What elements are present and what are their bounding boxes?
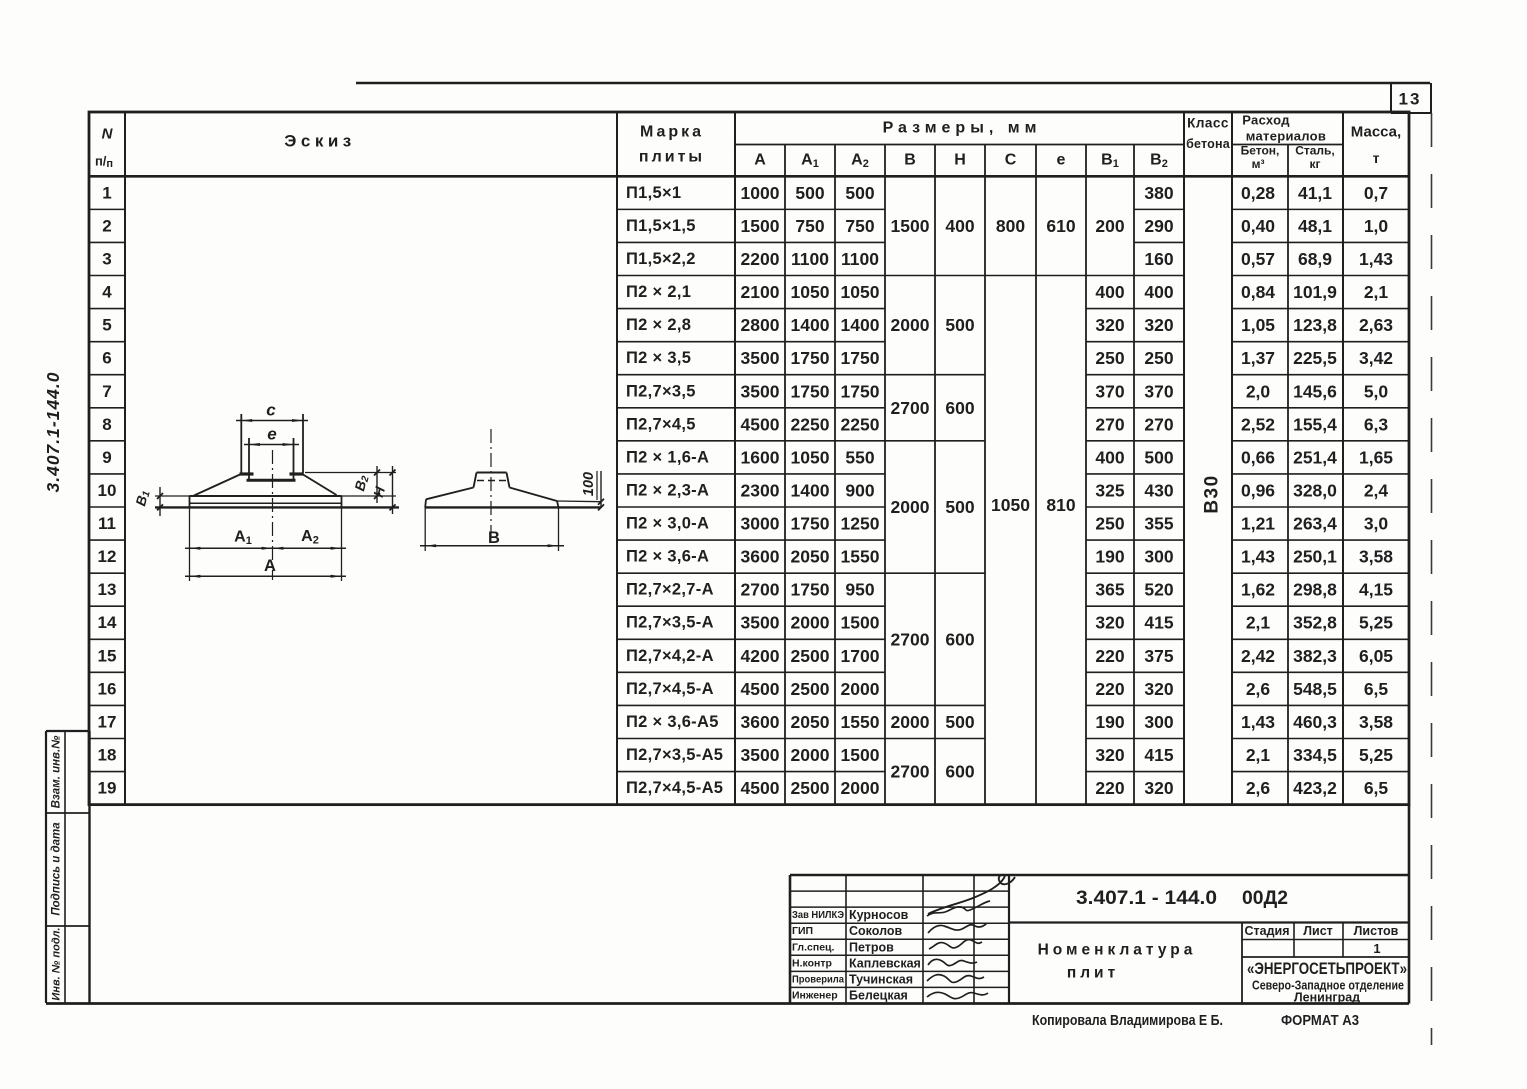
svg-text:415: 415 (1144, 745, 1173, 765)
svg-text:460,3: 460,3 (1293, 712, 1337, 732)
svg-text:Эскиз: Эскиз (284, 132, 355, 151)
svg-text:2700: 2700 (741, 580, 780, 600)
svg-text:520: 520 (1144, 580, 1173, 600)
svg-text:плит: плит (1067, 965, 1119, 982)
svg-text:0,96: 0,96 (1241, 480, 1275, 500)
svg-text:600: 600 (945, 398, 974, 418)
svg-text:П2,7×4,5: П2,7×4,5 (626, 415, 696, 433)
svg-text:298,8: 298,8 (1293, 580, 1337, 600)
svg-text:250: 250 (1095, 348, 1124, 368)
svg-text:0,66: 0,66 (1241, 447, 1275, 467)
svg-text:с: с (266, 401, 276, 420)
svg-text:П2,7×4,5-А5: П2,7×4,5-А5 (626, 779, 723, 797)
svg-text:400: 400 (945, 216, 974, 236)
svg-text:220: 220 (1095, 646, 1124, 666)
svg-text:500: 500 (945, 315, 974, 335)
svg-text:320: 320 (1144, 315, 1173, 335)
svg-text:1400: 1400 (791, 315, 830, 335)
svg-text:3,0: 3,0 (1364, 514, 1389, 534)
svg-text:N: N (102, 126, 114, 143)
svg-text:Бетон,: Бетон, (1241, 144, 1280, 158)
svg-text:4500: 4500 (741, 679, 780, 699)
svg-text:П2 × 3,6-А: П2 × 3,6-А (626, 548, 709, 566)
svg-text:3000: 3000 (741, 514, 780, 534)
svg-text:290: 290 (1144, 216, 1173, 236)
svg-text:400: 400 (1095, 447, 1124, 467)
svg-text:2,6: 2,6 (1246, 679, 1271, 699)
svg-text:2700: 2700 (891, 629, 930, 649)
svg-text:5,25: 5,25 (1359, 745, 1393, 765)
svg-text:1750: 1750 (791, 381, 830, 401)
svg-text:6: 6 (102, 349, 111, 368)
svg-text:2: 2 (102, 216, 111, 235)
svg-text:1: 1 (1373, 941, 1380, 956)
svg-text:5,0: 5,0 (1364, 381, 1389, 401)
svg-text:Н: Н (954, 152, 966, 169)
svg-text:1550: 1550 (841, 547, 880, 567)
svg-text:1: 1 (102, 183, 111, 202)
svg-text:320: 320 (1095, 315, 1124, 335)
svg-text:Инв. № подл.: Инв. № подл. (51, 927, 63, 1000)
svg-text:4200: 4200 (741, 646, 780, 666)
svg-text:382,3: 382,3 (1293, 646, 1337, 666)
svg-text:610: 610 (1046, 216, 1075, 236)
svg-text:2,4: 2,4 (1364, 480, 1389, 500)
svg-text:Подпись и дата: Подпись и дата (51, 822, 63, 916)
svg-text:Н.контр: Н.контр (792, 957, 832, 969)
svg-text:320: 320 (1144, 679, 1173, 699)
svg-text:Размеры, мм: Размеры, мм (883, 120, 1042, 137)
svg-text:370: 370 (1144, 381, 1173, 401)
svg-text:220: 220 (1095, 679, 1124, 699)
svg-text:Класс: Класс (1187, 116, 1229, 131)
svg-text:250: 250 (1144, 348, 1173, 368)
svg-text:3500: 3500 (741, 348, 780, 368)
svg-text:155,4: 155,4 (1293, 414, 1337, 434)
svg-text:3500: 3500 (741, 381, 780, 401)
svg-text:1750: 1750 (841, 348, 880, 368)
svg-text:А: А (264, 557, 276, 575)
svg-text:5,25: 5,25 (1359, 613, 1393, 633)
svg-text:Инженер: Инженер (792, 989, 838, 1001)
svg-text:Белецкая: Белецкая (849, 988, 908, 1002)
svg-text:3,42: 3,42 (1359, 348, 1393, 368)
svg-text:Соколов: Соколов (849, 924, 902, 938)
svg-text:14: 14 (98, 613, 117, 632)
svg-text:Ленинград: Ленинград (1294, 991, 1360, 1005)
svg-text:2250: 2250 (791, 414, 830, 434)
svg-text:423,2: 423,2 (1293, 778, 1337, 798)
svg-text:1100: 1100 (791, 249, 829, 269)
svg-text:0,84: 0,84 (1241, 282, 1275, 302)
svg-text:328,0: 328,0 (1293, 480, 1337, 500)
svg-text:190: 190 (1095, 712, 1124, 732)
svg-text:2000: 2000 (841, 778, 880, 798)
svg-text:1050: 1050 (841, 282, 880, 302)
svg-text:Расход: Расход (1242, 113, 1290, 128)
svg-text:П1,5×2,2: П1,5×2,2 (626, 250, 696, 268)
svg-text:1750: 1750 (791, 514, 830, 534)
svg-text:Копировала Владимирова Е Б.: Копировала Владимирова Е Б. (1032, 1013, 1223, 1029)
svg-text:кг: кг (1309, 157, 1320, 171)
svg-text:1250: 1250 (841, 514, 880, 534)
svg-text:101,9: 101,9 (1293, 282, 1337, 302)
svg-text:2000: 2000 (791, 613, 830, 633)
svg-text:9: 9 (102, 448, 111, 467)
svg-text:2250: 2250 (841, 414, 880, 434)
svg-text:Курносов: Курносов (849, 908, 909, 922)
svg-text:2,63: 2,63 (1359, 315, 1393, 335)
svg-text:2,52: 2,52 (1241, 414, 1275, 434)
svg-text:1050: 1050 (791, 282, 830, 302)
svg-text:334,5: 334,5 (1293, 745, 1337, 765)
svg-text:1100: 1100 (841, 249, 879, 269)
svg-text:415: 415 (1144, 613, 1173, 633)
svg-text:Зав НИЛКЭ: Зав НИЛКЭ (792, 909, 844, 921)
svg-text:3600: 3600 (741, 547, 780, 567)
svg-text:е: е (1057, 152, 1066, 169)
svg-text:263,4: 263,4 (1293, 514, 1337, 534)
svg-text:2,0: 2,0 (1246, 381, 1271, 401)
svg-text:810: 810 (1046, 495, 1075, 515)
svg-text:8: 8 (102, 415, 111, 434)
svg-text:е: е (267, 425, 276, 444)
svg-text:19: 19 (98, 779, 117, 798)
svg-text:5: 5 (102, 316, 111, 335)
svg-text:1750: 1750 (841, 381, 880, 401)
svg-text:П2 × 3,6-А5: П2 × 3,6-А5 (626, 713, 719, 731)
svg-text:бетона: бетона (1186, 137, 1231, 151)
svg-text:160: 160 (1144, 249, 1173, 269)
svg-text:1000: 1000 (741, 183, 780, 203)
svg-text:4: 4 (102, 283, 112, 302)
svg-text:Петров: Петров (849, 940, 894, 954)
svg-text:П2 × 1,6-А: П2 × 1,6-А (626, 448, 709, 466)
svg-text:2200: 2200 (741, 249, 780, 269)
svg-text:2000: 2000 (841, 679, 880, 699)
svg-text:7: 7 (102, 382, 111, 401)
svg-text:190: 190 (1095, 547, 1124, 567)
svg-text:0,40: 0,40 (1241, 216, 1275, 236)
svg-text:3,58: 3,58 (1359, 547, 1393, 567)
svg-text:2500: 2500 (791, 679, 830, 699)
svg-text:250,1: 250,1 (1293, 547, 1337, 567)
svg-text:Гл.спец.: Гл.спец. (792, 941, 834, 953)
svg-text:П2 × 3,0-А: П2 × 3,0-А (626, 515, 709, 533)
svg-text:2,6: 2,6 (1246, 778, 1271, 798)
svg-text:В: В (488, 529, 500, 547)
svg-text:68,9: 68,9 (1298, 249, 1332, 269)
svg-text:355: 355 (1144, 514, 1173, 534)
svg-text:145,6: 145,6 (1293, 381, 1337, 401)
svg-text:3.407.1 - 144.0: 3.407.1 - 144.0 (1076, 887, 1217, 909)
svg-text:Лист: Лист (1303, 924, 1333, 938)
svg-text:250: 250 (1095, 514, 1124, 534)
svg-text:2800: 2800 (741, 315, 780, 335)
svg-text:2000: 2000 (891, 315, 930, 335)
svg-text:430: 430 (1144, 480, 1173, 500)
svg-text:500: 500 (795, 183, 824, 203)
svg-text:1750: 1750 (791, 580, 830, 600)
svg-text:1,43: 1,43 (1241, 712, 1275, 732)
svg-text:0,57: 0,57 (1241, 249, 1275, 269)
svg-text:П2,7×2,7-А: П2,7×2,7-А (626, 581, 714, 599)
svg-text:Масса,: Масса, (1351, 124, 1401, 141)
svg-text:П2 × 2,3-А: П2 × 2,3-А (626, 481, 709, 499)
svg-text:1050: 1050 (991, 495, 1030, 515)
svg-text:4,15: 4,15 (1359, 580, 1393, 600)
svg-text:3.407.1-144.0: 3.407.1-144.0 (43, 371, 63, 492)
svg-text:2700: 2700 (891, 398, 930, 418)
svg-text:400: 400 (1095, 282, 1124, 302)
svg-text:3500: 3500 (741, 613, 780, 633)
svg-text:1,43: 1,43 (1359, 249, 1393, 269)
svg-text:251,4: 251,4 (1293, 447, 1337, 467)
svg-text:2,42: 2,42 (1241, 646, 1275, 666)
svg-text:«ЭНЕРГОСЕТЬПРОЕКТ»: «ЭНЕРГОСЕТЬПРОЕКТ» (1247, 960, 1407, 978)
svg-text:800: 800 (996, 216, 1025, 236)
svg-text:1600: 1600 (741, 447, 780, 467)
svg-text:10: 10 (98, 481, 117, 500)
svg-text:1400: 1400 (841, 315, 880, 335)
svg-text:352,8: 352,8 (1293, 613, 1337, 633)
svg-text:1,62: 1,62 (1241, 580, 1275, 600)
svg-text:00Д2: 00Д2 (1242, 887, 1288, 909)
svg-text:270: 270 (1144, 414, 1173, 434)
svg-text:200: 200 (1095, 216, 1124, 236)
svg-text:1500: 1500 (841, 613, 880, 633)
svg-text:П2,7×4,5-А: П2,7×4,5-А (626, 680, 714, 698)
svg-text:18: 18 (98, 746, 117, 765)
svg-text:2000: 2000 (891, 497, 930, 517)
svg-text:А: А (754, 152, 766, 169)
svg-text:320: 320 (1144, 778, 1173, 798)
svg-text:Номенклатура: Номенклатура (1038, 942, 1197, 959)
svg-text:325: 325 (1095, 480, 1124, 500)
svg-text:500: 500 (1144, 447, 1173, 467)
svg-text:365: 365 (1095, 580, 1124, 600)
svg-text:750: 750 (795, 216, 824, 236)
svg-text:300: 300 (1144, 547, 1173, 567)
svg-text:2050: 2050 (791, 712, 830, 732)
svg-text:1,21: 1,21 (1241, 514, 1275, 534)
svg-text:ГИП: ГИП (792, 925, 813, 937)
svg-text:2500: 2500 (791, 778, 830, 798)
svg-text:2,1: 2,1 (1246, 745, 1271, 765)
svg-text:548,5: 548,5 (1293, 679, 1337, 699)
svg-text:Тучинская: Тучинская (849, 972, 913, 986)
svg-text:2700: 2700 (891, 762, 930, 782)
svg-text:1500: 1500 (891, 216, 930, 236)
svg-text:П1,5×1: П1,5×1 (626, 184, 681, 202)
svg-text:2,1: 2,1 (1364, 282, 1389, 302)
svg-text:П2,7×3,5-А: П2,7×3,5-А (626, 614, 714, 632)
svg-text:П2,7×3,5-А5: П2,7×3,5-А5 (626, 746, 723, 764)
svg-text:1500: 1500 (841, 745, 880, 765)
svg-text:материалов: материалов (1246, 129, 1326, 144)
svg-text:600: 600 (945, 762, 974, 782)
svg-text:500: 500 (945, 497, 974, 517)
svg-text:6,05: 6,05 (1359, 646, 1393, 666)
svg-text:2500: 2500 (791, 646, 830, 666)
svg-text:4500: 4500 (741, 414, 780, 434)
svg-text:0,28: 0,28 (1241, 183, 1275, 203)
svg-text:370: 370 (1095, 381, 1124, 401)
svg-text:500: 500 (845, 183, 874, 203)
svg-text:1,05: 1,05 (1241, 315, 1275, 335)
svg-text:320: 320 (1095, 613, 1124, 633)
svg-text:6,3: 6,3 (1364, 414, 1389, 434)
svg-text:375: 375 (1144, 646, 1173, 666)
svg-text:плиты: плиты (639, 149, 705, 166)
svg-text:П2 × 2,1: П2 × 2,1 (626, 283, 691, 301)
svg-text:500: 500 (945, 712, 974, 732)
svg-text:1050: 1050 (791, 447, 830, 467)
svg-text:В: В (904, 152, 916, 169)
svg-text:41,1: 41,1 (1298, 183, 1332, 203)
svg-text:13: 13 (1399, 90, 1422, 109)
svg-text:225,5: 225,5 (1293, 348, 1337, 368)
svg-text:400: 400 (1144, 282, 1173, 302)
svg-text:1,37: 1,37 (1241, 348, 1275, 368)
svg-text:950: 950 (845, 580, 874, 600)
svg-text:11: 11 (98, 514, 116, 533)
svg-text:220: 220 (1095, 778, 1124, 798)
svg-text:1,43: 1,43 (1241, 547, 1275, 567)
svg-text:Марка: Марка (640, 124, 704, 141)
svg-text:Листов: Листов (1354, 924, 1399, 938)
svg-text:13: 13 (98, 580, 117, 599)
svg-text:0,7: 0,7 (1364, 183, 1388, 203)
svg-text:100: 100 (581, 472, 597, 496)
svg-text:м³: м³ (1252, 157, 1265, 171)
svg-text:Взам. инв.№: Взам. инв.№ (51, 736, 63, 809)
svg-text:320: 320 (1095, 745, 1124, 765)
svg-text:Каплевская: Каплевская (849, 956, 921, 970)
svg-text:2000: 2000 (891, 712, 930, 732)
svg-text:П1,5×1,5: П1,5×1,5 (626, 217, 696, 235)
svg-text:2000: 2000 (791, 745, 830, 765)
svg-text:2050: 2050 (791, 547, 830, 567)
svg-text:1750: 1750 (791, 348, 830, 368)
svg-text:48,1: 48,1 (1298, 216, 1332, 236)
svg-text:6,5: 6,5 (1364, 679, 1389, 699)
svg-text:1700: 1700 (841, 646, 880, 666)
svg-text:С: С (1005, 152, 1017, 169)
svg-text:123,8: 123,8 (1293, 315, 1337, 335)
svg-text:Стадия: Стадия (1244, 924, 1289, 938)
svg-text:2,1: 2,1 (1246, 613, 1271, 633)
svg-text:550: 550 (845, 447, 874, 467)
svg-text:750: 750 (845, 216, 874, 236)
svg-text:П2,7×3,5: П2,7×3,5 (626, 382, 696, 400)
svg-text:ФОРМАТ А3: ФОРМАТ А3 (1281, 1013, 1359, 1029)
svg-text:П2 × 3,5: П2 × 3,5 (626, 349, 691, 367)
svg-text:2100: 2100 (741, 282, 780, 302)
svg-text:3600: 3600 (741, 712, 780, 732)
svg-text:6,5: 6,5 (1364, 778, 1389, 798)
svg-text:3500: 3500 (741, 745, 780, 765)
svg-text:270: 270 (1095, 414, 1124, 434)
svg-text:380: 380 (1144, 183, 1173, 203)
svg-text:1550: 1550 (841, 712, 880, 732)
svg-text:П2,7×4,2-А: П2,7×4,2-А (626, 647, 714, 665)
svg-text:600: 600 (945, 629, 974, 649)
svg-text:16: 16 (98, 679, 117, 698)
svg-text:900: 900 (845, 480, 874, 500)
svg-text:300: 300 (1144, 712, 1173, 732)
svg-text:3,58: 3,58 (1359, 712, 1393, 732)
svg-text:Проверила: Проверила (792, 973, 844, 985)
svg-text:1,0: 1,0 (1364, 216, 1389, 236)
svg-text:12: 12 (98, 547, 117, 566)
svg-text:1500: 1500 (741, 216, 780, 236)
svg-text:1400: 1400 (791, 480, 830, 500)
svg-text:т: т (1373, 150, 1380, 166)
svg-text:3: 3 (102, 249, 111, 268)
svg-text:П2 × 2,8: П2 × 2,8 (626, 316, 691, 334)
svg-text:Сталь,: Сталь, (1295, 144, 1335, 158)
svg-text:15: 15 (98, 646, 117, 665)
svg-text:В30: В30 (1202, 474, 1223, 513)
svg-text:4500: 4500 (741, 778, 780, 798)
svg-text:2300: 2300 (741, 480, 780, 500)
svg-text:17: 17 (98, 712, 117, 731)
svg-text:1,65: 1,65 (1359, 447, 1393, 467)
